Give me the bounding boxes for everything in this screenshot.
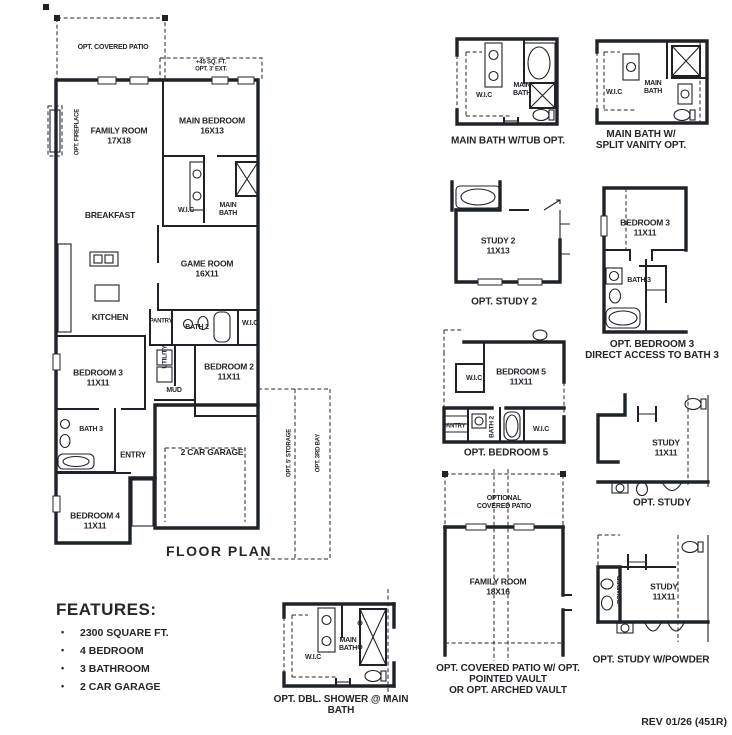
option-study2-room-label: STUDY 2 11X13 — [481, 236, 515, 255]
bedroom4-label: BEDROOM 4 11X11 — [70, 511, 120, 530]
option-bedroom5-dims: 11X11 — [496, 377, 546, 387]
option-patio-family-dims: 18X16 — [470, 587, 527, 597]
features-title: FEATURES: — [56, 600, 266, 620]
option-tub-mainbath-label: MAIN BATH — [513, 82, 531, 98]
option-study-dims: 11X11 — [652, 448, 680, 458]
option-dbl-shower-main: MAIN — [339, 637, 357, 645]
option-dbl-shower-mainbath-label: MAIN BATH — [339, 637, 357, 653]
option-study-caption: OPT. STUDY — [633, 497, 691, 508]
option-bedroom5-wic-left-label: W.I.C — [466, 375, 482, 383]
kitchen-label: KITCHEN — [92, 313, 128, 323]
main-bath-line2: BATH — [219, 210, 237, 218]
floor-plan-caption: FLOOR PLAN — [166, 544, 272, 560]
feature-item: 3 BATHROOM — [56, 663, 266, 675]
wic-label: W.I.C — [178, 207, 194, 215]
opt-ext-size: OPT. 3' EXT. — [195, 66, 227, 73]
option-patio-caption-line1: OPT. COVERED PATIO W/ OPT. — [436, 663, 580, 674]
opt-third-bay-label: OPT. 3RD BAY — [316, 434, 323, 472]
option-bedroom3-caption: OPT. BEDROOM 3 DIRECT ACCESS TO BATH 3 — [585, 339, 719, 361]
option-study-drawing — [590, 387, 712, 499]
family-room-dims: 17X18 — [91, 136, 148, 146]
option-patio-family-label: FAMILY ROOM 18X16 — [470, 577, 527, 596]
option-powder-room-label: STUDY 11X11 — [650, 582, 678, 601]
option-split-caption: MAIN BATH W/ SPLIT VANITY OPT. — [596, 129, 686, 151]
option-tub-drawing — [452, 30, 564, 130]
option-dbl-shower-caption-line1: OPT. DBL. SHOWER @ MAIN — [274, 694, 409, 705]
option-bedroom5-room-label: BEDROOM 5 11X11 — [496, 367, 546, 386]
opt-ext-label: +45 SQ. FT. OPT. 3' EXT. — [195, 59, 227, 72]
bath3-label: BATH 3 — [79, 426, 103, 434]
feature-item: 4 BEDROOM — [56, 645, 266, 657]
opt-covered-patio-label: OPT. COVERED PATIO — [78, 44, 149, 52]
option-bedroom3-caption-line1: OPT. BEDROOM 3 — [585, 339, 719, 350]
option-dbl-shower-caption-line2: BATH — [274, 705, 409, 716]
feature-item: 2300 SQUARE FT. — [56, 627, 266, 639]
garage-label: 2 CAR GARAGE — [181, 448, 244, 458]
option-patio-caption: OPT. COVERED PATIO W/ OPT. POINTED VAULT… — [436, 663, 580, 697]
option-bedroom5-pantry-label: PANTRY — [443, 424, 466, 431]
option-powder-label: POWDER — [616, 576, 623, 604]
option-powder-study-dims: 11X11 — [650, 592, 678, 602]
option-powder-caption: OPT. STUDY W/POWDER — [593, 654, 710, 665]
wic2-label: W.I.C — [242, 320, 258, 328]
opt-fireplace-label: OPT. FIREPLACE — [75, 109, 82, 155]
opt-storage-label: OPT. 5' STORAGE — [287, 429, 294, 477]
option-split-main: MAIN — [644, 80, 662, 88]
option-patio-line1: OPTIONAL — [477, 495, 531, 503]
main-bedroom-dims: 16X13 — [179, 126, 245, 136]
option-tub-bath: BATH — [513, 90, 531, 98]
option-bedroom3-drawing — [596, 182, 716, 344]
option-split-bath: BATH — [644, 88, 662, 96]
feature-item: 2 CAR GARAGE — [56, 681, 266, 693]
main-bath-label: MAIN BATH — [219, 202, 237, 218]
game-room-label: GAME ROOM 16X11 — [181, 259, 234, 278]
option-patio-caption-line2: POINTED VAULT — [436, 674, 580, 685]
breakfast-label: BREAKFAST — [85, 211, 135, 221]
features-block: FEATURES: 2300 SQUARE FT. 4 BEDROOM 3 BA… — [56, 600, 266, 699]
bath2-label: BATH 2 — [185, 324, 209, 332]
option-bedroom3-room-label: BEDROOM 3 11X11 — [620, 218, 670, 237]
features-list: 2300 SQUARE FT. 4 BEDROOM 3 BATHROOM 2 C… — [56, 627, 266, 693]
bedroom2-dims: 11X11 — [204, 372, 254, 382]
opt-ext-sqft: +45 SQ. FT. — [195, 59, 227, 66]
option-bedroom3-dims: 11X11 — [620, 228, 670, 238]
utility-label: UTILITY — [161, 345, 168, 368]
option-split-caption-line2: SPLIT VANITY OPT. — [596, 140, 686, 151]
bedroom3-label: BEDROOM 3 11X11 — [73, 368, 123, 387]
option-study2-caption: OPT. STUDY 2 — [471, 296, 537, 307]
option-bedroom3-bath-label: BATH 3 — [627, 277, 651, 285]
bedroom4-dims: 11X11 — [70, 521, 120, 531]
option-bedroom5-bath2-label: BATH 2 — [488, 416, 495, 438]
option-dbl-shower-wic-label: W.I.C — [305, 654, 321, 662]
option-dbl-shower-caption: OPT. DBL. SHOWER @ MAIN BATH — [274, 694, 409, 716]
main-bedroom-label: MAIN BEDROOM 16X13 — [179, 116, 245, 135]
option-split-caption-line1: MAIN BATH W/ — [596, 129, 686, 140]
option-tub-main: MAIN — [513, 82, 531, 90]
option-patio-label: OPTIONAL COVERED PATIO — [477, 495, 531, 511]
main-bath-line1: MAIN — [219, 202, 237, 210]
option-tub-wic-label: W.I.C — [476, 92, 492, 100]
option-patio-caption-line3: OR OPT. ARCHED VAULT — [436, 686, 580, 697]
option-bedroom5-wic-right-label: W.I.C — [533, 426, 549, 434]
revision-note: REV 01/26 (451R) — [641, 716, 727, 728]
option-patio-line2: COVERED PATIO — [477, 503, 531, 511]
option-study2-dims: 11X13 — [481, 246, 515, 256]
option-study-room-label: STUDY 11X11 — [652, 438, 680, 457]
main-floor-plan-drawing — [42, 4, 334, 562]
bedroom3-dims: 11X11 — [73, 378, 123, 388]
option-bedroom3-caption-line2: DIRECT ACCESS TO BATH 3 — [585, 350, 719, 361]
option-split-wic-label: W.I.C — [606, 89, 622, 97]
bedroom2-label: BEDROOM 2 11X11 — [204, 362, 254, 381]
option-split-mainbath-label: MAIN BATH — [644, 80, 662, 96]
family-room-label: FAMILY ROOM 17X18 — [91, 126, 148, 145]
option-dbl-shower-bath: BATH — [339, 645, 357, 653]
pantry-label: PANTRY — [150, 319, 173, 326]
floor-plan-sheet: OPT. COVERED PATIO +45 SQ. FT. OPT. 3' E… — [0, 0, 732, 735]
mud-label: MUD — [166, 387, 181, 395]
option-bedroom5-caption: OPT. BEDROOM 5 — [464, 447, 548, 458]
game-room-dims: 16X11 — [181, 269, 234, 279]
entry-label: ENTRY — [120, 452, 146, 461]
option-tub-caption: MAIN BATH W/TUB OPT. — [451, 135, 565, 146]
